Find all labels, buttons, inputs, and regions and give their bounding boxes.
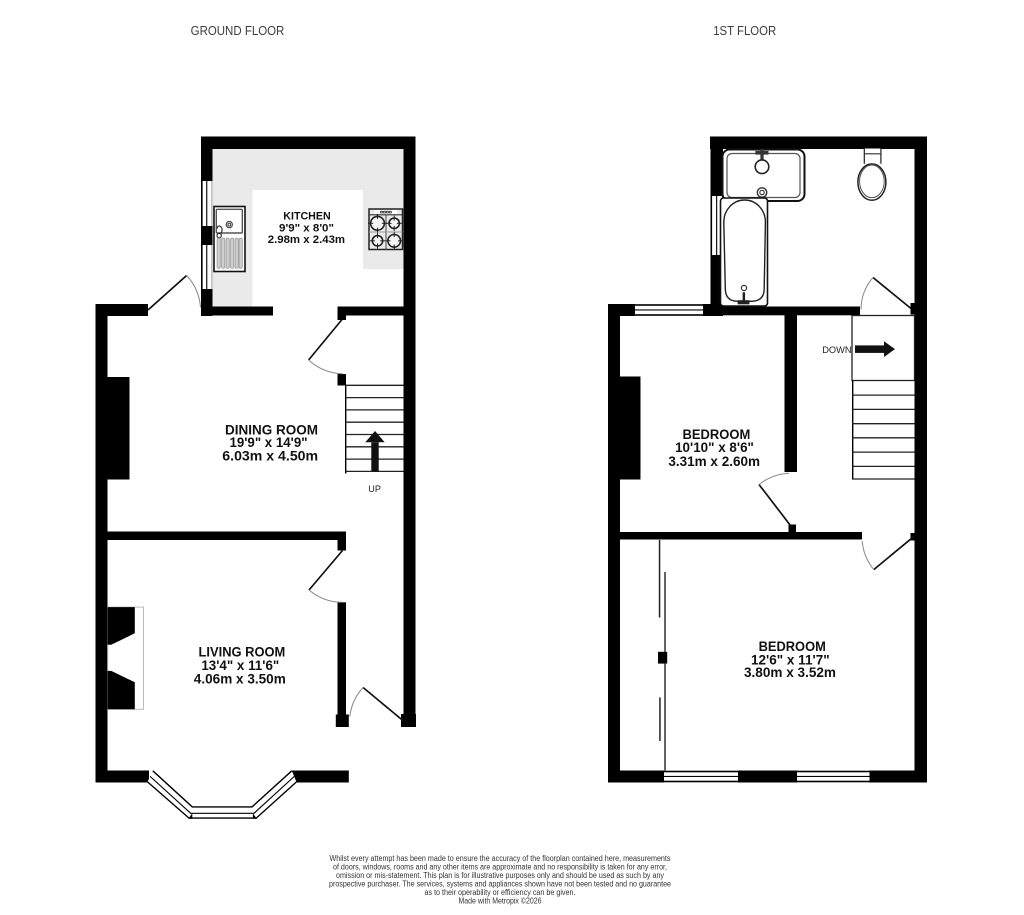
svg-text:KITCHEN: KITCHEN	[283, 211, 330, 223]
svg-text:DOWN: DOWN	[822, 345, 852, 356]
svg-text:9'9" x 8'0": 9'9" x 8'0"	[279, 222, 334, 234]
svg-text:3.80m x 3.52m: 3.80m x 3.52m	[744, 665, 836, 680]
svg-text:3.31m x 2.60m: 3.31m x 2.60m	[668, 454, 760, 469]
svg-text:1ST FLOOR: 1ST FLOOR	[713, 24, 776, 38]
svg-text:GROUND FLOOR: GROUND FLOOR	[191, 24, 285, 38]
svg-text:Made with Metropix ©2026: Made with Metropix ©2026	[459, 896, 542, 905]
svg-text:6.03m x 4.50m: 6.03m x 4.50m	[222, 449, 318, 464]
svg-text:4.06m x 3.50m: 4.06m x 3.50m	[194, 671, 286, 686]
svg-text:2.98m x 2.43m: 2.98m x 2.43m	[268, 234, 346, 246]
svg-text:UP: UP	[368, 484, 381, 495]
